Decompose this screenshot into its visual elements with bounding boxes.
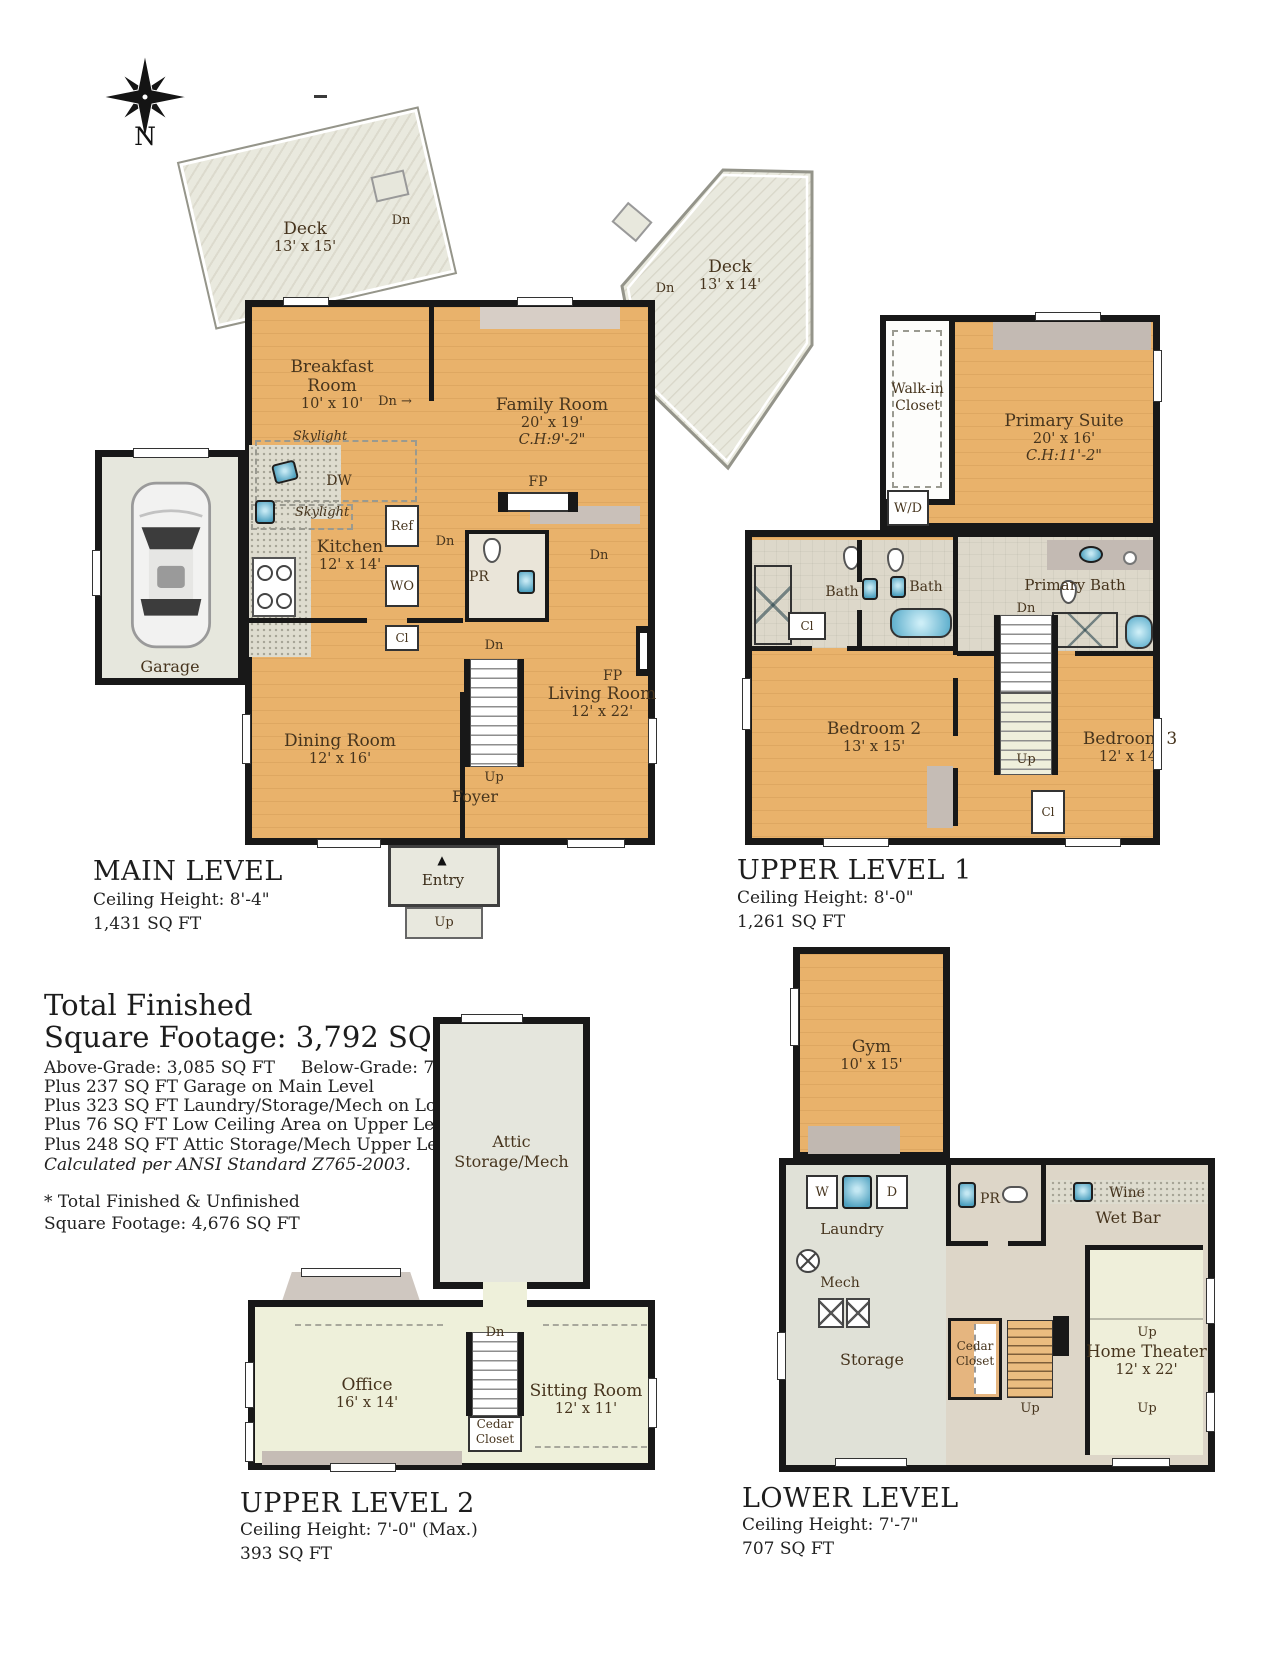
ll-pr-sink-icon	[958, 1182, 976, 1208]
ul2-cedar-line1: Cedar	[464, 1418, 526, 1430]
window	[1153, 718, 1162, 770]
office-label: Office 16' x 14'	[286, 1376, 448, 1412]
low-ceiling-dashed	[295, 1324, 443, 1326]
summary-title-1: Total Finished	[44, 988, 253, 1022]
lower-level-area: 707 SQ FT	[742, 1539, 834, 1559]
wall-pbath-bottom-b	[1075, 651, 1155, 656]
wall-bedrooms-b	[953, 768, 958, 826]
window	[648, 718, 657, 764]
breakfast-room-label: Breakfast Room 10' x 10'	[257, 358, 407, 413]
cl-tag-main: Cl	[395, 632, 408, 644]
low-ceiling-dashed	[535, 1446, 647, 1448]
sitting-room-label: Sitting Room 12' x 11'	[505, 1382, 667, 1418]
bedroom2-dresser	[927, 766, 953, 828]
ll-cedar-line1: Cedar	[944, 1340, 1006, 1352]
walkin-closet-label: Walk-in Closet	[880, 382, 955, 413]
walkin-line2: Closet	[880, 399, 955, 413]
wd-tag: W/D	[894, 502, 922, 515]
main-stairs	[470, 659, 518, 767]
window	[835, 1458, 907, 1467]
skylight-label-2: Skylight	[281, 506, 363, 519]
deck-right-name: Deck	[670, 258, 790, 277]
wo-tag: WO	[390, 580, 414, 593]
kitchen-name: Kitchen	[290, 538, 410, 557]
primary-dims: 20' x 16'	[980, 431, 1148, 448]
dryer-box: D	[876, 1175, 908, 1209]
deck-left-dn-tag: Dn	[381, 214, 421, 227]
garage-door	[133, 448, 209, 458]
wall-breakfast-family	[429, 305, 434, 401]
window	[301, 1268, 401, 1277]
dining-dims: 12' x 16'	[260, 751, 420, 768]
wall-baths-b	[857, 610, 862, 648]
living-room-label: Living Room 12' x 22'	[522, 685, 682, 721]
window	[283, 297, 329, 306]
wall-bath-bottom-a	[750, 646, 812, 651]
lower-level-title: LOWER LEVEL	[742, 1483, 959, 1514]
car-icon	[125, 474, 217, 656]
bath2-label: Bath	[903, 580, 949, 594]
living-dims: 12' x 22'	[522, 704, 682, 721]
living-fireplace-slit	[640, 633, 647, 669]
bath1-shower-icon	[754, 565, 792, 645]
ul1-cl-bottom-tag: Cl	[1041, 806, 1054, 818]
window	[1206, 1392, 1215, 1432]
ul1-stairs-down	[1000, 615, 1052, 693]
window	[1153, 350, 1162, 402]
bedroom3-name: Bedroom 3	[1049, 730, 1211, 749]
primary-name: Primary Suite	[980, 412, 1148, 431]
family-fireplace-box	[498, 492, 578, 512]
wetbar-sink-icon	[1073, 1182, 1093, 1202]
stray-dash	[314, 95, 327, 98]
garage-label: Garage	[95, 658, 245, 676]
ht-riser-line	[1090, 1318, 1203, 1320]
mech-equipment-icon	[846, 1298, 870, 1328]
window	[777, 1332, 786, 1380]
sitting-name: Sitting Room	[505, 1382, 667, 1401]
upper-level-1-area: 1,261 SQ FT	[737, 912, 845, 932]
breakfast-line2: Room	[257, 377, 407, 396]
upper-level-2-plan: Attic Storage/Mech Office 16' x 14' Sitt…	[235, 1010, 675, 1570]
deck-right-dn-tag: Dn	[643, 282, 687, 295]
ll-stairs	[1007, 1320, 1053, 1398]
ll-cedar-line2: Closet	[944, 1355, 1006, 1367]
primary-ch: C.H:11'-2"	[980, 448, 1148, 465]
main-level-plan: Dn Deck 13' x 15' Deck 13' x 14' Dn	[85, 118, 830, 948]
ll-pr-tag: PR	[980, 1192, 1010, 1206]
laundry-sink-icon	[842, 1175, 872, 1209]
deck-left-dims: 13' x 15'	[235, 239, 375, 256]
wall-bath-bottom-b	[847, 646, 955, 651]
wall-kitchen-dining-b	[407, 618, 463, 623]
bath2-tub-icon	[890, 608, 952, 638]
breakfast-line1: Breakfast	[257, 358, 407, 377]
low-ceiling-dashed	[543, 1324, 647, 1326]
ul1-closet-left: Cl	[788, 612, 826, 640]
mech-drain-icon	[795, 1248, 821, 1274]
mech-equipment-icon	[818, 1298, 844, 1328]
hall-dn-tag-2: Dn	[425, 535, 465, 548]
ll-up-tag: Up	[1006, 1402, 1054, 1415]
living-name: Living Room	[522, 685, 682, 704]
compass-center	[142, 94, 148, 100]
family-fireplace-cap-l	[498, 492, 508, 512]
window	[1035, 312, 1101, 321]
bedroom2-name: Bedroom 2	[793, 720, 955, 739]
window	[1206, 1278, 1215, 1324]
family-fireplace-cap-r	[568, 492, 578, 512]
window	[242, 714, 251, 764]
upper-level-1-plan: Walk-in Closet W/D Primary Suite 20' x 1…	[735, 290, 1195, 930]
attic-line2: Storage/Mech	[433, 1154, 590, 1170]
window	[461, 1014, 523, 1023]
closet-box-main: Cl	[385, 625, 419, 651]
primary-bath-label: Primary Bath	[997, 576, 1153, 594]
window	[742, 678, 751, 730]
wall-bedrooms-a	[953, 678, 958, 736]
family-dims: 20' x 19'	[472, 415, 632, 432]
wall-ht-top	[1085, 1245, 1203, 1250]
attic-line1: Attic	[433, 1134, 590, 1150]
kitchen-dims: 12' x 14'	[290, 557, 410, 574]
window	[1112, 1458, 1170, 1467]
ul2-cedar-label: Cedar Closet	[464, 1418, 526, 1445]
bath1-label: Bath	[819, 585, 865, 599]
window	[330, 1463, 396, 1472]
floorplan-page: N Dn Deck 13' x 15' Deck 13' x 14'	[0, 0, 1280, 1657]
wall-baths-a	[857, 540, 862, 582]
gym-builtin	[808, 1126, 900, 1154]
ref-tag: Ref	[391, 520, 413, 533]
wine-label: Wine	[1092, 1186, 1162, 1200]
kitchen-sink2-icon	[255, 500, 275, 524]
attic-doorway	[483, 1282, 527, 1308]
dishwasher-tag: DW	[317, 474, 361, 488]
upper-level-2-title: UPPER LEVEL 2	[240, 1488, 475, 1519]
sitting-dims: 12' x 11'	[505, 1401, 667, 1418]
washer-box: W	[806, 1175, 838, 1209]
home-theater-name: Home Theater	[1070, 1342, 1223, 1361]
stairs-up-tag: Up	[473, 771, 515, 784]
ll-stair-wall	[1053, 1316, 1069, 1356]
main-level-ceiling: Ceiling Height: 8'-4"	[93, 890, 270, 910]
deck-right-label: Deck 13' x 14'	[670, 258, 790, 294]
family-room-window-seat	[480, 307, 620, 329]
ul2-cedar-line2: Closet	[464, 1433, 526, 1445]
window	[517, 297, 573, 306]
home-theater-dims: 12' x 22'	[1070, 1362, 1223, 1379]
entry-triangle-icon: ▲	[430, 853, 454, 867]
upper-level-2-area: 393 SQ FT	[240, 1544, 332, 1564]
upper-level-1-title: UPPER LEVEL 1	[737, 855, 972, 886]
wall-kitchen-dining-a	[245, 618, 367, 623]
wall-pbath-left	[953, 537, 958, 655]
kitchen-label: Kitchen 12' x 14'	[290, 538, 410, 574]
main-level-title: MAIN LEVEL	[93, 856, 283, 887]
ul1-dn-tag: Dn	[1002, 602, 1050, 615]
lower-level-plan: Gym 10' x 15' W D Laundry Mech Storage P…	[740, 940, 1240, 1560]
ul2-dn-tag: Dn	[473, 1326, 517, 1339]
living-fp-tag: FP	[603, 669, 631, 683]
breakfast-dims: 10' x 10'	[257, 396, 407, 413]
powder-room-tag: PR	[469, 570, 497, 584]
walkin-line1: Walk-in	[880, 382, 955, 396]
family-fp-tag: FP	[518, 475, 558, 489]
window	[1065, 838, 1121, 847]
wall-ll-pr-b1	[946, 1241, 988, 1246]
window	[245, 1362, 254, 1408]
upper-level-1-ceiling: Ceiling Height: 8'-0"	[737, 888, 914, 908]
gym-label: Gym 10' x 15'	[793, 1038, 950, 1074]
entry-label: Entry	[403, 871, 483, 889]
dining-room-label: Dining Room 12' x 16'	[260, 732, 420, 768]
bedroom3-dims: 12' x 14'	[1049, 749, 1211, 766]
deck-right-steps	[613, 203, 651, 241]
family-room-label: Family Room 20' x 19' C.H:9'-2"	[472, 396, 632, 450]
wetbar-label: Wet Bar	[1068, 1208, 1188, 1227]
gym-name: Gym	[793, 1038, 950, 1057]
hall-dn-tag-3: Dn	[579, 549, 619, 562]
ll-cedar-label: Cedar Closet	[944, 1340, 1006, 1367]
office-name: Office	[286, 1376, 448, 1395]
mech-label: Mech	[808, 1276, 872, 1290]
deck-left-label: Deck 13' x 15'	[235, 220, 375, 256]
ul1-closet-bottom: Cl	[1031, 790, 1065, 834]
dining-name: Dining Room	[260, 732, 420, 751]
foyer-label: Foyer	[435, 788, 515, 806]
primary-window-seat	[993, 322, 1151, 350]
bedroom3-label: Bedroom 3 12' x 14'	[1049, 730, 1211, 766]
bedroom2-dims: 13' x 15'	[793, 739, 955, 756]
attic-label: Attic Storage/Mech	[433, 1134, 590, 1170]
ul1-cl-left-tag: Cl	[800, 620, 813, 632]
window	[648, 1378, 657, 1428]
powder-sink-icon	[517, 570, 535, 594]
window	[823, 838, 889, 847]
primary-shower-icon	[1052, 612, 1118, 648]
window	[790, 988, 799, 1046]
dryer-tag: D	[887, 1186, 897, 1199]
washer-dryer-box: W/D	[887, 490, 929, 526]
gym-dims: 10' x 15'	[793, 1057, 950, 1074]
wall-ll-pr-r	[1041, 1160, 1046, 1246]
entry-up-tag: Up	[426, 916, 462, 929]
stairs-dn-tag: Dn	[473, 639, 515, 652]
wall-ll-pr-b2	[1008, 1241, 1046, 1246]
vanity-stool-icon	[1123, 551, 1137, 565]
ul1-up-tag: Up	[1002, 753, 1050, 766]
primary-vanity-sink-icon	[1079, 546, 1103, 563]
bedroom2-label: Bedroom 2 13' x 15'	[793, 720, 955, 756]
lower-level-ceiling: Ceiling Height: 7'-7"	[742, 1515, 919, 1535]
skylight-label-1: Skylight	[279, 430, 361, 443]
family-name: Family Room	[472, 396, 632, 415]
ht-up-tag-top: Up	[1127, 1326, 1167, 1339]
washer-tag: W	[815, 1186, 828, 1199]
wall-ll-pr-l	[946, 1160, 951, 1246]
window	[92, 550, 101, 596]
window	[317, 839, 381, 848]
office-dims: 16' x 14'	[286, 1395, 448, 1412]
main-level-area: 1,431 SQ FT	[93, 914, 201, 934]
laundry-label: Laundry	[792, 1220, 912, 1238]
primary-tub-icon	[1125, 615, 1153, 649]
deck-left-name: Deck	[235, 220, 375, 239]
family-ch: C.H:9'-2"	[472, 432, 632, 449]
upper-level-2-ceiling: Ceiling Height: 7'-0" (Max.)	[240, 1520, 478, 1540]
window	[245, 1422, 254, 1462]
primary-suite-label: Primary Suite 20' x 16' C.H:11'-2"	[980, 412, 1148, 466]
ht-up-tag-bottom: Up	[1127, 1402, 1167, 1415]
window	[567, 839, 625, 848]
storage-label: Storage	[812, 1350, 932, 1369]
